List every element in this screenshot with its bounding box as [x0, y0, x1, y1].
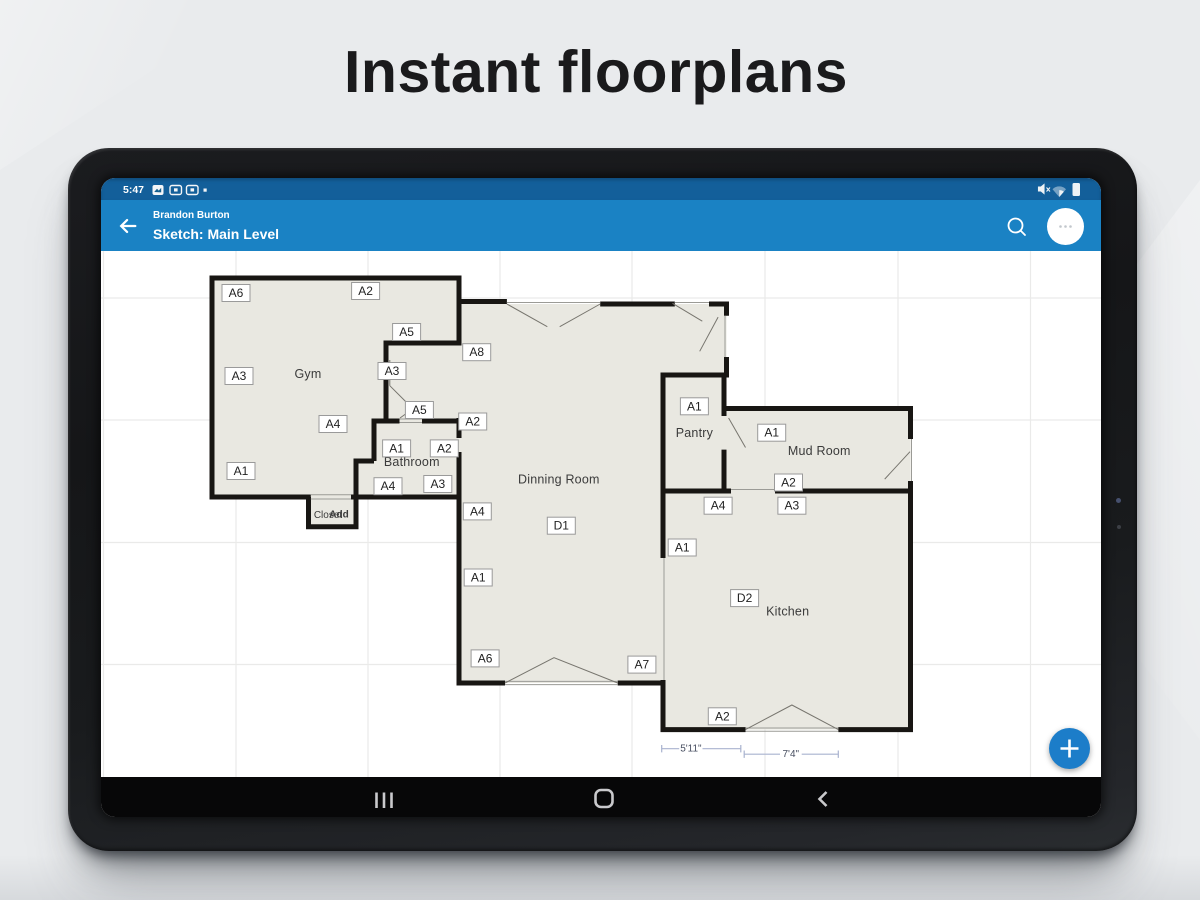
- svg-text:A1: A1: [675, 541, 690, 555]
- svg-text:Pantry: Pantry: [676, 426, 714, 440]
- svg-text:A5: A5: [412, 403, 427, 417]
- svg-text:A4: A4: [381, 479, 396, 493]
- svg-text:A3: A3: [232, 369, 247, 383]
- svg-text:Mud Room: Mud Room: [788, 444, 851, 458]
- svg-text:A2: A2: [437, 441, 452, 455]
- svg-text:5'11": 5'11": [680, 744, 702, 755]
- svg-text:Kitchen: Kitchen: [766, 605, 809, 619]
- svg-text:A8: A8: [469, 345, 484, 359]
- svg-text:A1: A1: [389, 441, 404, 455]
- svg-text:Add: Add: [329, 510, 348, 521]
- svg-text:A1: A1: [764, 426, 779, 440]
- svg-text:A2: A2: [715, 709, 730, 723]
- svg-text:A2: A2: [465, 415, 480, 429]
- svg-text:Gym: Gym: [295, 367, 322, 381]
- svg-text:A3: A3: [785, 499, 800, 513]
- svg-text:A1: A1: [471, 571, 486, 585]
- svg-text:A4: A4: [326, 417, 341, 431]
- svg-text:D2: D2: [737, 591, 753, 605]
- svg-text:Dinning Room: Dinning Room: [518, 473, 600, 487]
- svg-text:A1: A1: [687, 399, 702, 413]
- svg-text:A7: A7: [635, 658, 650, 672]
- svg-text:A2: A2: [358, 284, 373, 298]
- svg-text:A6: A6: [478, 651, 493, 665]
- svg-text:A4: A4: [470, 504, 485, 518]
- svg-text:A2: A2: [781, 476, 796, 490]
- svg-text:A3: A3: [430, 477, 445, 491]
- svg-text:7'4": 7'4": [783, 749, 800, 760]
- svg-text:A6: A6: [229, 286, 244, 300]
- svg-text:A1: A1: [234, 464, 249, 478]
- svg-text:A5: A5: [399, 325, 414, 339]
- svg-text:A3: A3: [385, 364, 400, 378]
- svg-text:A4: A4: [711, 499, 726, 513]
- svg-text:D1: D1: [554, 519, 570, 533]
